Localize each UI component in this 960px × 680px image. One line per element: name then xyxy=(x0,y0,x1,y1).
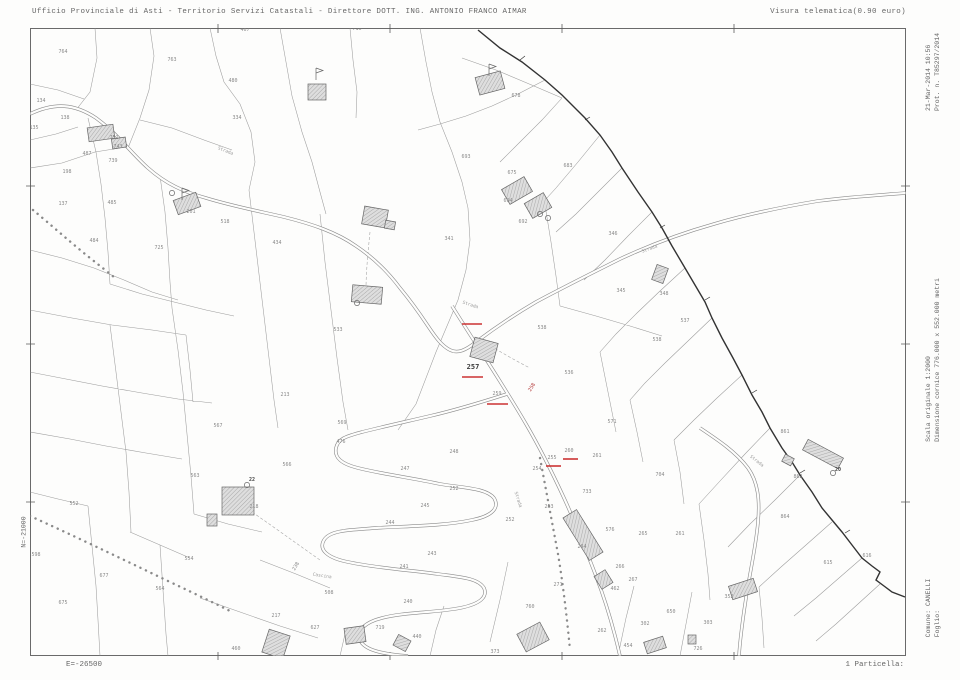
parcel-label: 264 xyxy=(577,544,586,550)
parcel-label: 255 xyxy=(547,455,556,461)
parcel-label: 137 xyxy=(58,201,67,207)
parcel-label: 862 xyxy=(793,474,802,480)
parcel-label: 693 xyxy=(461,154,470,160)
road-name-label: Strada xyxy=(513,491,524,509)
parcel-label: 334 xyxy=(232,115,241,121)
parcel-label: 303 xyxy=(703,620,712,626)
parcel-label: 217 xyxy=(271,613,280,619)
parcel-label: 508 xyxy=(324,590,333,596)
parcel-label: 262 xyxy=(597,628,606,634)
territory-boundary-line xyxy=(478,30,905,597)
parcel-label: 213 xyxy=(280,392,289,398)
parcel-label: 271 xyxy=(553,582,562,588)
parcel-label: 20 xyxy=(835,467,841,473)
parcel-label: 201 xyxy=(186,209,195,215)
parcel-label: 138 xyxy=(60,115,69,121)
parcel-label: 253 xyxy=(544,504,553,510)
boundary-ticks xyxy=(520,56,850,533)
parcel-label: 719 xyxy=(375,625,384,631)
parcel-label: 345 xyxy=(616,288,625,294)
parcel-label: 567 xyxy=(213,423,222,429)
road-names-layer: StradaStradaStradaStradaCascinaStrada xyxy=(217,145,765,580)
parcel-label: 254 xyxy=(532,466,541,472)
parcel-label: 533 xyxy=(333,327,342,333)
building xyxy=(362,206,389,228)
parcel-label: 538 xyxy=(652,337,661,343)
parcel-label: 864 xyxy=(780,514,789,520)
building xyxy=(688,635,696,644)
well-symbol xyxy=(169,190,174,195)
parcel-labels-layer: 7164677647634801341381354877391981374854… xyxy=(29,26,871,655)
parcel-label: 243 xyxy=(427,551,436,557)
road-name-label: Strada xyxy=(748,454,765,469)
parcel-label: 198 xyxy=(62,169,71,175)
parcel-label: 302 xyxy=(640,621,649,627)
parcel-label: 485 xyxy=(107,200,116,206)
parcel-label: 694 xyxy=(503,198,512,204)
parcel-label: 743 xyxy=(113,144,122,150)
parcel-label: 554 xyxy=(184,556,193,562)
parcel-label: 716 xyxy=(352,26,361,32)
cadastral-map: 7164677647634801341381354877391981374854… xyxy=(0,0,960,680)
visura-catastale-page: Ufficio Provinciale di Asti - Territorio… xyxy=(0,0,960,680)
flag-symbol xyxy=(316,68,323,80)
parcel-label: 751 xyxy=(109,135,118,141)
building xyxy=(803,439,844,468)
building xyxy=(524,193,552,219)
parcel-label: 571 xyxy=(607,419,616,425)
parcel-label: 260 xyxy=(564,448,573,454)
parcel-label: 563 xyxy=(190,473,199,479)
parcel-label: 552 xyxy=(69,501,78,507)
building xyxy=(652,264,669,283)
parcel-label: 677 xyxy=(99,573,108,579)
parcel-label: 434 xyxy=(272,240,281,246)
parcel-label: 247 xyxy=(400,466,409,472)
parcel-label: 760 xyxy=(525,604,534,610)
parcel-label: 476 xyxy=(336,439,345,445)
parcel-label: 460 xyxy=(231,646,240,652)
building xyxy=(475,71,505,95)
parcel-label: 569 xyxy=(337,420,346,426)
parcel-label: 518 xyxy=(220,219,229,225)
parcel-label: 266 xyxy=(615,564,624,570)
building xyxy=(207,514,217,526)
parcel-label: 248 xyxy=(449,449,458,455)
building xyxy=(393,634,411,651)
parcel-label: 267 xyxy=(628,577,637,583)
parcel-label: 454 xyxy=(623,643,632,649)
road-name-label: Strada xyxy=(462,300,480,311)
parcel-label: 564 xyxy=(155,586,164,592)
parcel-label: 675 xyxy=(507,170,516,176)
parcel-label: 467 xyxy=(240,27,249,33)
parcel-label: 487 xyxy=(82,151,91,157)
parcel-label: 650 xyxy=(666,609,675,615)
parcel-label: 241 xyxy=(399,564,408,570)
parcel-label: 627 xyxy=(310,625,319,631)
building xyxy=(470,337,498,363)
building xyxy=(644,636,667,654)
parcel-label: 261 xyxy=(675,531,684,537)
parcel-label: 462 xyxy=(610,586,619,592)
parcel-label: 244 xyxy=(385,520,394,526)
parcel-label: 341 xyxy=(444,236,453,242)
building xyxy=(563,510,603,561)
parcel-label: 739 xyxy=(108,158,117,164)
parcel-label: 245 xyxy=(420,503,429,509)
building xyxy=(351,285,382,305)
building xyxy=(262,629,290,659)
parcel-label: 733 xyxy=(582,489,591,495)
parcel-label: 678 xyxy=(511,93,520,99)
parcel-label: 683 xyxy=(563,163,572,169)
parcel-label: 259 xyxy=(492,391,501,397)
tree-row-paths xyxy=(30,210,570,650)
parcel-label: 348 xyxy=(659,291,668,297)
parcel-label: 598 xyxy=(31,552,40,558)
symbols-layer xyxy=(169,64,835,488)
parcel-label: 704 xyxy=(655,472,664,478)
frame-ticks xyxy=(26,24,910,660)
parcel-label: 218 xyxy=(249,504,258,510)
parcel-label: 480 xyxy=(228,78,237,84)
selected-parcel-label: 257 xyxy=(467,363,480,371)
building xyxy=(517,622,549,652)
parcel-label: 135 xyxy=(29,125,38,131)
parcel-label: 240 xyxy=(403,599,412,605)
parcel-label: 134 xyxy=(36,98,45,104)
parcel-label: 440 xyxy=(412,634,421,640)
building xyxy=(308,84,326,100)
parcel-label: 538 xyxy=(537,325,546,331)
road-name-label: Cascina xyxy=(312,572,332,581)
parcel-label: 764 xyxy=(58,49,67,55)
parcel-label: 252 xyxy=(449,486,458,492)
parcel-label: 675 xyxy=(58,600,67,606)
parcel-label: 373 xyxy=(490,649,499,655)
parcel-label: 22 xyxy=(249,477,255,483)
parcel-label: 258 xyxy=(527,382,537,393)
parcel-label: 537 xyxy=(680,318,689,324)
parcel-label: 484 xyxy=(89,238,98,244)
parcel-label: 566 xyxy=(282,462,291,468)
building xyxy=(222,487,254,515)
dashed-paths xyxy=(252,232,530,560)
well-symbol xyxy=(545,215,550,220)
parcel-label: 763 xyxy=(167,57,176,63)
parcel-label: 265 xyxy=(638,531,647,537)
parcel-label: 576 xyxy=(605,527,614,533)
parcel-label: 261 xyxy=(592,453,601,459)
building xyxy=(384,220,395,230)
road-name-label: Strada xyxy=(217,145,235,157)
building xyxy=(344,626,366,645)
parcel-label: 252 xyxy=(505,517,514,523)
parcel-label: 725 xyxy=(154,245,163,251)
map-frame xyxy=(31,29,906,656)
parcel-label: 238 xyxy=(291,561,301,572)
parcel-label: 692 xyxy=(518,219,527,225)
roads xyxy=(30,106,906,656)
parcel-label: 352 xyxy=(724,594,733,600)
parcel-label: 616 xyxy=(862,553,871,559)
parcel-label: 536 xyxy=(564,370,573,376)
parcel-label: 346 xyxy=(608,231,617,237)
parcel-label: 615 xyxy=(823,560,832,566)
building xyxy=(782,454,795,466)
parcel-label: 861 xyxy=(780,429,789,435)
parcel-label: 726 xyxy=(693,646,702,652)
